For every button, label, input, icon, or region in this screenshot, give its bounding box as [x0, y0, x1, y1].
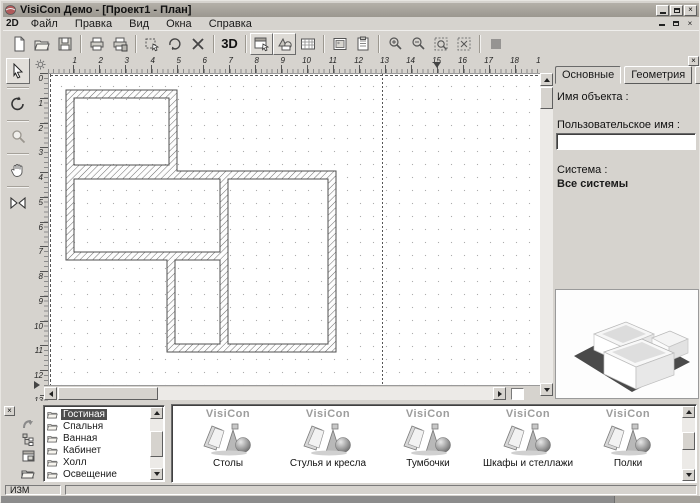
- mirror-tool-button[interactable]: [6, 190, 30, 216]
- open-folder-icon: [34, 36, 50, 52]
- ruler-tick: 11: [308, 56, 334, 73]
- printer-icon: [89, 36, 105, 52]
- menu-item[interactable]: Справка: [202, 18, 259, 30]
- zoom-extents-button[interactable]: [452, 33, 475, 55]
- ruler-tick: 11: [33, 345, 48, 370]
- vertical-ruler: 012345678910111213: [33, 73, 48, 401]
- pointer-icon: [11, 63, 25, 79]
- rotate-tool-icon: [10, 96, 26, 112]
- scroll-left-button[interactable]: [44, 387, 57, 400]
- ruler-tick: 3: [33, 147, 48, 172]
- tool-palette: [3, 56, 33, 401]
- panel-close-button[interactable]: ×: [688, 56, 699, 66]
- restore-button[interactable]: [670, 5, 683, 16]
- ruler-tick: 4: [126, 56, 152, 73]
- ruler-tick: 7: [204, 56, 230, 73]
- mdi-restore-button[interactable]: [670, 19, 682, 29]
- user-name-label: Пользовательское имя :: [557, 119, 680, 131]
- walls[interactable]: [66, 90, 336, 352]
- ruler-tick: 5: [33, 197, 48, 222]
- minimize-button[interactable]: [656, 5, 669, 16]
- mirror-icon: [9, 196, 27, 210]
- furniture-library: VisiCon Столы: [171, 404, 697, 483]
- folder-icon: [47, 446, 58, 455]
- preview-3d[interactable]: [555, 289, 699, 399]
- scroll-down-button[interactable]: [682, 469, 695, 481]
- ruler-tick: 12: [334, 56, 360, 73]
- cursor-position-marker-h: [433, 62, 441, 68]
- ruler-tick: 6: [178, 56, 204, 73]
- ruler-tick: 6: [33, 222, 48, 247]
- system-label: Система :: [557, 164, 607, 176]
- printer-setup-icon: [112, 36, 128, 52]
- menu-item[interactable]: Вид: [122, 18, 156, 30]
- ruler-tick: 13: [360, 56, 386, 73]
- save-icon: [57, 36, 73, 52]
- canvas-option-checkbox[interactable]: [511, 388, 524, 400]
- ruler-tick: 8: [33, 271, 48, 296]
- table-icon: [300, 36, 316, 52]
- view-3d-button[interactable]: 3D: [218, 33, 241, 55]
- ruler-tick: 10: [282, 56, 308, 73]
- insert-document-button[interactable]: [351, 33, 374, 55]
- properties-panel: × Основные Геометрия Материалы Имя объек…: [553, 56, 699, 401]
- up-arrow-icon: [21, 416, 35, 429]
- library-category[interactable]: VisiCon Шкафы и с: [480, 409, 576, 469]
- rotate-tool-button[interactable]: [6, 91, 30, 117]
- ruler-tick: 0: [33, 73, 48, 98]
- mdi-child-icon[interactable]: 2D: [3, 18, 24, 29]
- arrow-down-icon: [154, 472, 160, 476]
- delete-icon: [190, 36, 206, 52]
- ruler-tick: 14: [386, 56, 412, 73]
- system-value: Все системы: [557, 178, 628, 190]
- zoom-in-button[interactable]: [383, 33, 406, 55]
- library-toolbar: [16, 415, 40, 483]
- ruler-tick: 18: [490, 56, 516, 73]
- library-panel-icon: [277, 36, 293, 52]
- select-region-button[interactable]: [140, 33, 163, 55]
- ruler-tick: 3: [100, 56, 126, 73]
- visicon-logo-icon: [502, 420, 554, 456]
- library-panel: × Гостиная: [3, 401, 699, 484]
- ruler-tick: 19: [516, 56, 540, 73]
- room-list-item[interactable]: Холл: [46, 456, 150, 468]
- horizontal-ruler: 12345678910111213141516171819: [48, 56, 540, 73]
- canvas-vertical-scrollbar[interactable]: [540, 73, 553, 396]
- visicon-logo-icon: [202, 420, 254, 456]
- canvas-horizontal-scrollbar[interactable]: [44, 387, 506, 400]
- category-label: Полки: [614, 458, 642, 469]
- arrow-up-icon: [154, 411, 160, 415]
- horizontal-scroll-thumb[interactable]: [58, 387, 158, 400]
- delete-object-button[interactable]: [186, 33, 209, 55]
- category-label: Столы: [213, 458, 243, 469]
- tool-separator: [7, 186, 29, 187]
- visicon-logo-icon: [602, 420, 654, 456]
- room-list-item[interactable]: Спальня: [46, 420, 150, 432]
- visicon-logo-icon: [302, 420, 354, 456]
- ruler-origin-button[interactable]: [33, 56, 48, 73]
- ruler-tick: 16: [438, 56, 464, 73]
- menu-item[interactable]: Файл: [24, 18, 65, 30]
- scroll-up-button[interactable]: [682, 406, 695, 418]
- print-button[interactable]: [85, 33, 108, 55]
- page-setup-icon: [35, 59, 46, 70]
- hand-icon: [10, 162, 26, 178]
- user-name-input[interactable]: [556, 133, 696, 150]
- arrow-left-icon: [49, 391, 53, 397]
- room-list-item[interactable]: Кабинет: [46, 444, 150, 456]
- toggle-properties-button[interactable]: [250, 33, 273, 55]
- toolbar-separator: [378, 35, 379, 53]
- scroll-up-button[interactable]: [540, 73, 553, 86]
- toolbar-separator: [135, 35, 136, 53]
- object-name-label: Имя объекта :: [557, 91, 629, 103]
- tree-icon: [22, 433, 35, 446]
- zoom-out-button[interactable]: [406, 33, 429, 55]
- select-tool-button[interactable]: [6, 58, 30, 84]
- close-icon: ×: [688, 6, 693, 14]
- arrow-down-icon: [686, 473, 692, 477]
- insert-image-button[interactable]: [328, 33, 351, 55]
- menu-items: Файл Правка Вид Окна Справка: [24, 18, 259, 30]
- scroll-thumb[interactable]: [150, 431, 163, 457]
- toolbar-separator: [245, 35, 246, 53]
- open-library-button[interactable]: [19, 466, 37, 480]
- ruler-tick: 8: [230, 56, 256, 73]
- restore-icon: [673, 21, 679, 26]
- menu-item[interactable]: Окна: [159, 18, 199, 30]
- toolbar-separator: [213, 35, 214, 53]
- toolbar-separator: [80, 35, 81, 53]
- drawing-canvas[interactable]: [48, 73, 540, 386]
- properties-panel-icon: [254, 36, 270, 52]
- scroll-down-button[interactable]: [150, 468, 163, 480]
- visicon-logo-text: VisiCon: [306, 409, 350, 420]
- ruler-tick: 5: [152, 56, 178, 73]
- image-icon: [332, 36, 348, 52]
- room-list-item[interactable]: Ванная: [46, 432, 150, 444]
- zoom-in-icon: [387, 36, 403, 52]
- select-region-icon: [144, 36, 160, 52]
- app-window: VisiCon Демо - [Проект1 - План] × 2D Фай…: [0, 0, 700, 502]
- visicon-logo-text: VisiCon: [206, 409, 250, 420]
- minimize-icon: [659, 24, 665, 26]
- rotate-icon: [167, 36, 183, 52]
- title-bar: VisiCon Демо - [Проект1 - План] ×: [3, 3, 699, 17]
- ruler-tick: 1: [33, 98, 48, 123]
- folder-icon: [47, 470, 58, 479]
- close-button[interactable]: ×: [684, 5, 697, 16]
- toolbar: 3D: [3, 30, 699, 56]
- scroll-down-button[interactable]: [540, 383, 553, 396]
- view-mode-button[interactable]: [19, 449, 37, 463]
- toolbar-separator: [323, 35, 324, 53]
- toggle-grid-button[interactable]: [484, 33, 507, 55]
- properties-tab[interactable]: Основные: [555, 66, 621, 84]
- panel-close-button[interactable]: ×: [4, 406, 15, 416]
- status-message: [65, 485, 697, 495]
- ruler-tick: 1: [48, 56, 74, 73]
- zoom-out-icon: [410, 36, 426, 52]
- library-category[interactable]: VisiCon Полки: [580, 409, 676, 469]
- ruler-tick: 7: [33, 246, 48, 271]
- vertical-scroll-thumb[interactable]: [540, 87, 553, 109]
- mdi-close-button[interactable]: ×: [684, 19, 696, 29]
- toggle-table-button[interactable]: [296, 33, 319, 55]
- up-level-button[interactable]: [19, 415, 37, 429]
- magnifier-icon: [10, 129, 26, 145]
- zoom-window-button[interactable]: [429, 33, 452, 55]
- ruler-tick: 17: [464, 56, 490, 73]
- folder-icon: [47, 422, 58, 431]
- workspace: 12345678910111213141516171819 0123456789…: [3, 56, 699, 401]
- visicon-logo-text: VisiCon: [606, 409, 650, 420]
- ruler-tick: 2: [33, 123, 48, 148]
- toolbar-separator: [479, 35, 480, 53]
- library-category[interactable]: VisiCon Столы: [180, 409, 276, 469]
- print-setup-button[interactable]: [108, 33, 131, 55]
- floor-plan[interactable]: [49, 74, 540, 386]
- arrow-right-icon: [498, 391, 502, 397]
- ruler-tick: 9: [33, 296, 48, 321]
- room-list-scrollbar[interactable]: [150, 407, 163, 480]
- minimize-icon: [660, 12, 666, 14]
- new-file-button[interactable]: [7, 33, 30, 55]
- folder-icon: [47, 410, 58, 419]
- folder-icon: [47, 434, 58, 443]
- rotate-object-button[interactable]: [163, 33, 186, 55]
- preview-3d-render: [556, 290, 698, 398]
- room-list-item[interactable]: Освещение: [46, 468, 150, 480]
- view-3d-label: 3D: [221, 36, 238, 51]
- folder-icon: [21, 468, 35, 479]
- pan-tool-button[interactable]: [6, 157, 30, 183]
- ruler-tick: 9: [256, 56, 282, 73]
- folder-icon: [47, 458, 58, 467]
- mdi-minimize-button[interactable]: [656, 19, 668, 29]
- arrow-down-icon: [544, 388, 550, 392]
- cursor-position-marker-v: [34, 381, 40, 389]
- grid-icon: [488, 36, 504, 52]
- properties-tabs: Основные Геометрия Материалы: [555, 66, 700, 84]
- status-bar: ИЗМ: [3, 484, 699, 496]
- ruler-tick: 10: [33, 321, 48, 346]
- status-mode: ИЗМ: [5, 485, 61, 495]
- room-list-item[interactable]: Гостиная: [46, 408, 150, 420]
- menu-item[interactable]: Правка: [68, 18, 119, 30]
- ruler-tick: 2: [74, 56, 100, 73]
- tool-separator: [7, 153, 29, 154]
- zoom-tool-button[interactable]: [6, 124, 30, 150]
- toggle-library-button[interactable]: [273, 33, 296, 55]
- tool-separator: [7, 87, 29, 88]
- tool-separator: [7, 120, 29, 121]
- properties-tab[interactable]: Материалы: [695, 66, 700, 84]
- properties-tab[interactable]: Геометрия: [624, 66, 692, 84]
- window-title: VisiCon Демо - [Проект1 - План]: [20, 4, 191, 16]
- scroll-up-button[interactable]: [150, 407, 163, 419]
- category-label: Тумбочки: [406, 458, 449, 469]
- library-scrollbar[interactable]: [682, 406, 695, 481]
- open-file-button[interactable]: [30, 33, 53, 55]
- new-file-icon: [11, 36, 27, 52]
- scroll-thumb[interactable]: [682, 432, 695, 450]
- arrow-up-icon: [544, 78, 550, 82]
- library-category[interactable]: VisiCon Тумбочки: [380, 409, 476, 469]
- document-icon: [355, 36, 371, 52]
- category-label: Шкафы и стеллажи: [483, 458, 573, 469]
- ruler-tick: 4: [33, 172, 48, 197]
- menu-bar: 2D Файл Правка Вид Окна Справка ×: [3, 17, 699, 30]
- save-file-button[interactable]: [53, 33, 76, 55]
- window-icon: [22, 450, 35, 462]
- category-label: Стулья и кресла: [290, 458, 366, 469]
- visicon-logo-text: VisiCon: [406, 409, 450, 420]
- room-list: Гостиная Спальня Ванная: [43, 405, 165, 482]
- restore-icon: [674, 8, 680, 13]
- close-icon: ×: [688, 19, 693, 28]
- visicon-logo-text: VisiCon: [506, 409, 550, 420]
- tree-view-button[interactable]: [19, 432, 37, 446]
- visicon-logo-icon: [402, 420, 454, 456]
- arrow-up-icon: [686, 410, 692, 414]
- app-icon: [5, 5, 16, 15]
- zoom-window-icon: [433, 36, 449, 52]
- library-category[interactable]: VisiCon Стулья и: [280, 409, 376, 469]
- zoom-extents-icon: [456, 36, 472, 52]
- scroll-right-button[interactable]: [493, 387, 506, 400]
